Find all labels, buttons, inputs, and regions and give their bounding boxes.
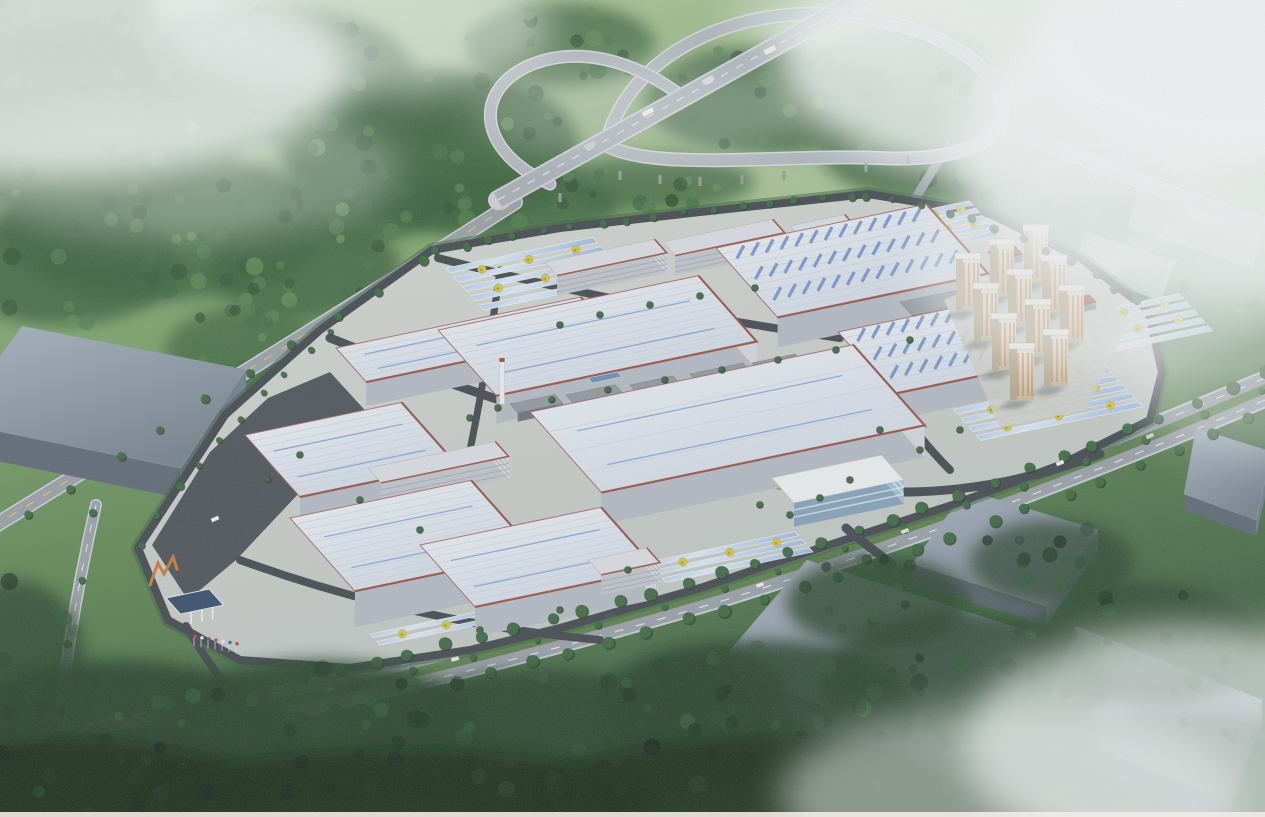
aerial-rendering-industrial-park — [0, 0, 1265, 817]
print-grain-overlay — [0, 0, 1265, 817]
scan-edge-strip — [0, 812, 1265, 817]
scene-svg — [0, 0, 1265, 817]
